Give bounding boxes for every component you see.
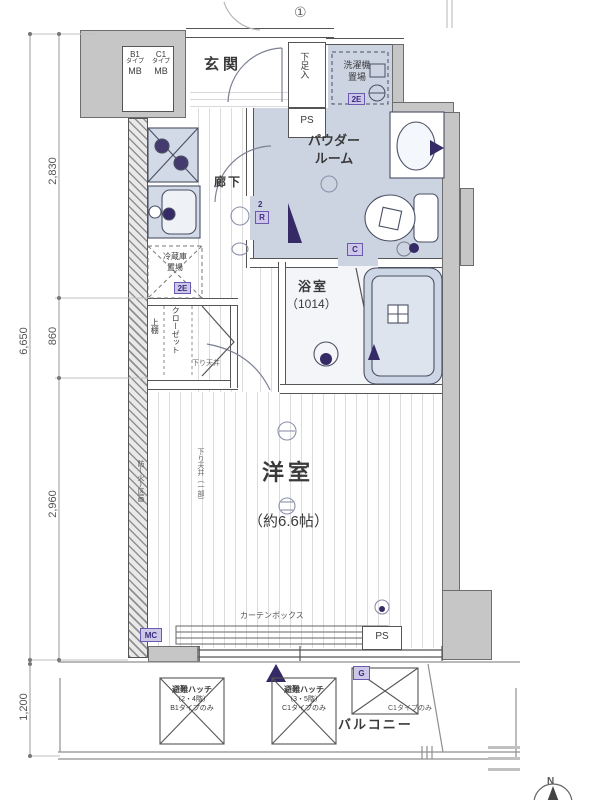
mb-type-c1: C1 xyxy=(152,50,170,59)
compass-icon xyxy=(488,746,572,800)
wall-bottom-right-block xyxy=(442,590,492,660)
dimension-ticks xyxy=(28,32,61,758)
evac-hatch-1-floors: （2・4階） xyxy=(161,696,223,704)
evac-hatch-1-only: B1タイプのみ xyxy=(161,705,223,713)
fridge-label-1: 冷蔵庫 xyxy=(150,252,200,261)
bathroom-size: （1014） xyxy=(286,298,337,312)
powder-room-label-1: パウダー xyxy=(290,134,378,149)
mb-type-b1: B1 xyxy=(126,50,144,59)
window-lines xyxy=(198,646,442,661)
evac-hatch-1-name: 避難ハッチ xyxy=(161,685,223,694)
mb-compartment-text: B1 タイプ MB C1 タイプ MB xyxy=(122,50,174,76)
powder-door-num: 2 xyxy=(258,200,262,209)
evac-hatch-2-name: 避難ハッチ xyxy=(273,685,335,694)
g-tag: G xyxy=(353,666,370,680)
closet-ceiling-note: 下り天井 xyxy=(192,360,220,368)
wall-under-closet xyxy=(148,380,238,390)
wall-toilet-nook xyxy=(460,188,474,266)
wall-bottom-left xyxy=(148,646,200,662)
wall-powder-bath-left xyxy=(250,258,338,268)
fridge-tag: 2E xyxy=(174,282,191,294)
mb-label: MB xyxy=(126,66,144,76)
ps-top-label: PS xyxy=(288,115,326,127)
wall-powder-left-upper xyxy=(246,108,254,196)
hallway-label: 廊下 xyxy=(214,176,242,190)
toilet-tag: C xyxy=(347,243,363,256)
western-room-size: （約6.6帖） xyxy=(248,513,329,530)
mb-label: MB xyxy=(152,66,170,76)
closet-label: クローゼット xyxy=(171,306,180,354)
mb-type-word: タイプ xyxy=(152,59,170,66)
mc-tag: MC xyxy=(140,628,162,642)
shoe-cabinet-label: 下足入 xyxy=(299,52,309,79)
dim-balcony: 1,200 xyxy=(18,684,30,730)
wall-top-entrance xyxy=(186,28,334,38)
dim-seg-mid: 860 xyxy=(47,313,59,359)
compass-north-label: N xyxy=(547,776,554,788)
wall-left-hatched xyxy=(128,118,148,658)
bathroom-label: 浴室 xyxy=(298,280,328,295)
floor-plan: B1 タイプ MB C1 タイプ MB 玄関 下足入 PS 洗濯機 置場 2E … xyxy=(0,0,600,800)
dim-seg-bottom: 2,960 xyxy=(47,481,59,527)
wall-powder-bath-right xyxy=(378,258,442,268)
fire-partition-note: 防(火)区画 xyxy=(136,460,144,502)
upper-shelf-label: 上棚 xyxy=(150,318,159,334)
ps-bottom-label: PS xyxy=(362,631,402,643)
balcony-label: バルコニー xyxy=(338,718,413,733)
evac-hatch-2-floors: （3・5階） xyxy=(273,696,335,704)
wall-bath-left xyxy=(278,262,286,392)
laundry-label-2: 置場 xyxy=(330,72,384,82)
entrance-label: 玄関 xyxy=(204,56,242,73)
laundry-tag: 2E xyxy=(348,93,365,105)
evac-hatch-2-only: C1タイプのみ xyxy=(273,705,335,713)
western-room-label: 洋室 xyxy=(262,460,314,485)
dim-seg-top: 2,830 xyxy=(47,148,59,194)
hallway-floor-lower xyxy=(250,266,280,392)
powder-room-floor xyxy=(250,108,442,266)
wall-closet-right xyxy=(230,300,238,388)
powder-room-label-2: ルーム xyxy=(290,152,378,167)
laundry-label-1: 洗濯機 xyxy=(330,60,384,70)
curtain-box-label: カーテンボックス xyxy=(240,611,304,620)
wall-closet-top xyxy=(148,298,238,306)
mb-type-word: タイプ xyxy=(126,59,144,66)
powder-door-tag: R xyxy=(255,211,269,224)
room-ceiling-note: 下り天井（一部） xyxy=(196,448,204,504)
fridge-label-2: 置場 xyxy=(150,263,200,272)
entrance-step-floor xyxy=(190,86,288,108)
wall-right-outer xyxy=(442,112,460,658)
wall-bath-bottom xyxy=(280,384,442,394)
dim-overall: 6,650 xyxy=(18,318,30,364)
c1-only-note: C1タイプのみ xyxy=(388,705,432,713)
hallway-floor xyxy=(188,108,250,392)
circle-one-mark: ① xyxy=(294,4,307,20)
